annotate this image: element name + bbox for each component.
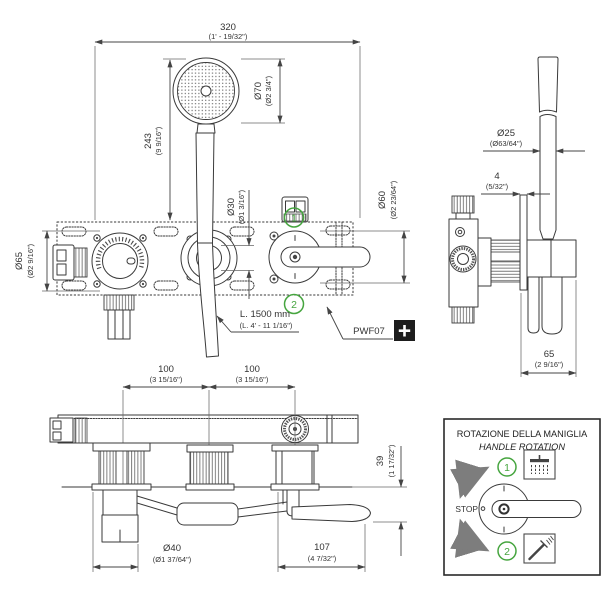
- handle-side: [527, 240, 576, 334]
- escutcheon: [92, 484, 151, 490]
- left-inlet-connector: [53, 245, 87, 280]
- hand-shower-side: [538, 57, 558, 239]
- marker-2-label: 2: [291, 299, 297, 311]
- dim-head-mm: Ø70: [253, 82, 264, 100]
- dim-thickness-mm: 4: [494, 171, 499, 182]
- dim-overall-width: 320 (1' - 19/32"): [95, 22, 360, 220]
- dim-spacing-left-in: (3 15/16"): [150, 375, 183, 384]
- plus-badge: [394, 320, 415, 341]
- dim-body-height-mm: 39: [375, 456, 386, 467]
- dim-rod-diameter: Ø25 (Ø63/64"): [483, 128, 585, 151]
- hose-length-mm: L. 1500 mm: [240, 309, 290, 320]
- hand-shower-handle: [196, 133, 214, 243]
- dim-body-height: 39 (1 17/32"): [352, 444, 407, 556]
- dim-trim-in: (Ø2 9/16"): [26, 243, 35, 278]
- hose-length-callout: L. 1500 mm (L. 4' - 11 1/16"): [217, 309, 299, 332]
- dim-width-in: (1' - 19/32"): [209, 32, 248, 41]
- thermostat-dial: [92, 233, 148, 289]
- outlet-fitting-bottom: [102, 490, 138, 542]
- dim-outlet-in: (Ø1 3/16"): [237, 189, 246, 224]
- side-view: Ø25 (Ø63/64") 4 (5/32"): [449, 57, 585, 377]
- bottom-view: 100 (3 15/16") 100 (3 15/16"): [50, 364, 407, 572]
- shower-head-neck: [197, 124, 215, 133]
- legend-marker-1-label: 1: [504, 462, 510, 474]
- dim-lever-in: (4 7/32"): [308, 554, 337, 563]
- hand-shower-grip-bottom: [137, 496, 287, 525]
- lever-bottom: [283, 490, 371, 522]
- dim-height-mm: 243: [143, 133, 154, 149]
- legend-title-italian: ROTAZIONE DELLA MANIGLIA: [457, 429, 588, 439]
- valve-body: [449, 196, 520, 323]
- dim-lever-mm: 107: [314, 542, 330, 553]
- dim-depth-mm: 65: [544, 349, 555, 360]
- dim-spacing-right: 100 (3 15/16"): [209, 364, 295, 387]
- dim-rod-in: (Ø63/64"): [490, 139, 523, 148]
- legend-box: ROTAZIONE DELLA MANIGLIA HANDLE ROTATION…: [444, 419, 600, 575]
- hand-shower-icon: [524, 534, 555, 563]
- inlet-stubs: [93, 443, 318, 488]
- dim-depth-in: (2 9/16"): [535, 360, 564, 369]
- dim-spacing-left: 100 (3 15/16"): [123, 364, 209, 387]
- escutcheon: [271, 484, 319, 490]
- dim-outlet-bottom-in: (Ø1 37/64"): [153, 555, 192, 564]
- front-view: 320 (1' - 19/32") Ø70 (Ø2 3/4") 243 (9 9…: [14, 22, 415, 357]
- dim-head-in: (Ø2 3/4"): [264, 75, 273, 106]
- threaded-pipe: [491, 261, 520, 282]
- dim-spacing-left-mm: 100: [158, 364, 174, 375]
- hose-length-in: (L. 4' - 11 1/16"): [240, 321, 293, 330]
- stop-label: STOP: [455, 504, 478, 514]
- dim-outlet-bottom-mm: Ø40: [163, 543, 181, 554]
- hand-shower-head: [173, 58, 239, 133]
- product-code-callout: PWF07: [327, 307, 415, 341]
- wall-plate-edge: [520, 195, 527, 290]
- marker-1-label: 1: [291, 213, 297, 225]
- legend-marker-2-label: 2: [504, 546, 510, 558]
- dim-trim-mm: Ø65: [14, 252, 25, 270]
- dim-spacing-right-in: (3 15/16"): [236, 375, 269, 384]
- threaded-pipe: [491, 240, 520, 252]
- dim-height-in: (9 9/16"): [154, 126, 163, 155]
- dim-rod-mm: Ø25: [497, 128, 515, 139]
- dim-handle-mm: Ø60: [377, 191, 388, 209]
- escutcheon: [186, 484, 234, 490]
- bottom-inlet-fitting: [104, 295, 134, 339]
- dim-spacing-right-mm: 100: [244, 364, 260, 375]
- dim-head-diameter: Ø70 (Ø2 3/4"): [241, 59, 285, 123]
- dim-thickness-in: (5/32"): [486, 182, 509, 191]
- technical-drawing: 320 (1' - 19/32") Ø70 (Ø2 3/4") 243 (9 9…: [0, 0, 613, 589]
- rain-shower-icon: [524, 450, 555, 479]
- product-code: PWF07: [353, 326, 385, 337]
- dim-outlet-mm: Ø30: [226, 198, 237, 216]
- dim-body-height-in: (1 17/32"): [387, 444, 396, 477]
- dim-handle-in: (Ø2 23/64"): [389, 180, 398, 219]
- plate-bottom: [50, 415, 358, 443]
